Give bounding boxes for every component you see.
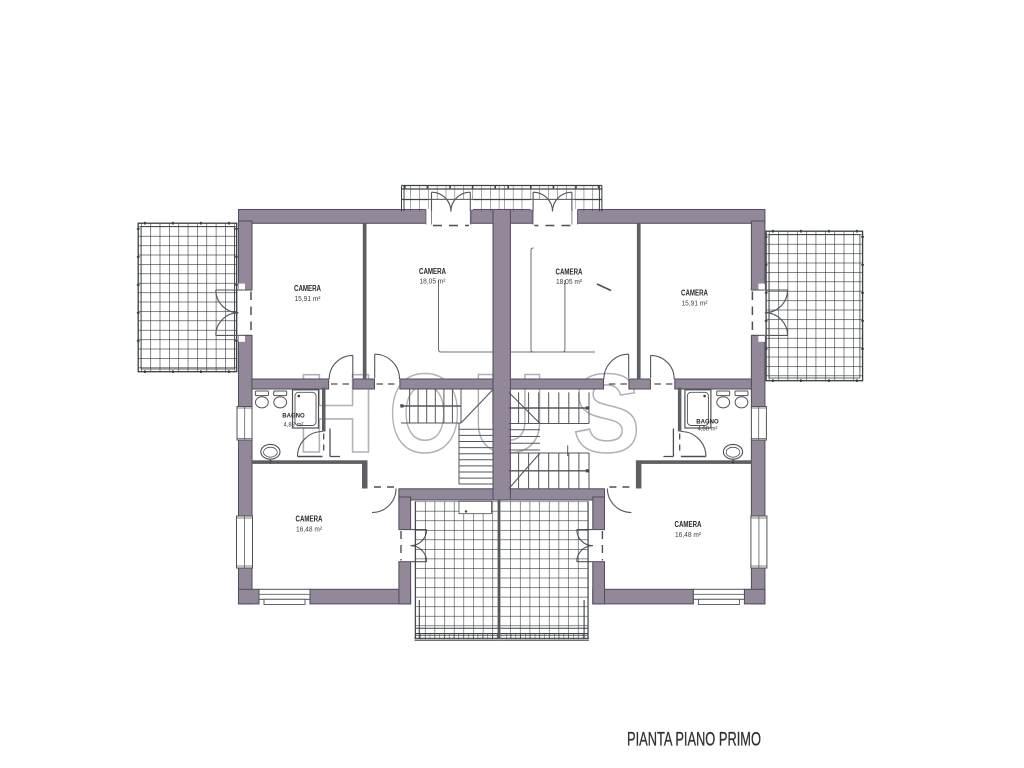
svg-text:BAGNO: BAGNO [282, 413, 305, 420]
svg-text:15,91 m²: 15,91 m² [295, 294, 321, 303]
svg-text:15,91 m²: 15,91 m² [682, 299, 708, 308]
svg-text:18,05 m²: 18,05 m² [420, 277, 446, 286]
svg-text:CAMERA: CAMERA [294, 284, 321, 293]
svg-text:S: S [573, 351, 641, 476]
svg-text:18,05 m²: 18,05 m² [556, 277, 582, 286]
svg-text:PIANTA PIANO PRIMO: PIANTA PIANO PRIMO [627, 730, 761, 751]
svg-text:CAMERA: CAMERA [419, 267, 446, 276]
svg-text:4,88 m²: 4,88 m² [284, 422, 304, 429]
svg-text:16,48 m²: 16,48 m² [296, 525, 322, 534]
svg-text:BAGNO: BAGNO [696, 419, 719, 426]
svg-text:CAMERA: CAMERA [675, 520, 702, 529]
svg-text:CAMERA: CAMERA [556, 268, 583, 277]
svg-text:16,48 m²: 16,48 m² [675, 530, 701, 539]
svg-text:4,88 m²: 4,88 m² [698, 426, 718, 433]
svg-text:CAMERA: CAMERA [681, 289, 708, 298]
svg-text:CAMERA: CAMERA [296, 515, 323, 524]
svg-text:O: O [389, 351, 462, 476]
